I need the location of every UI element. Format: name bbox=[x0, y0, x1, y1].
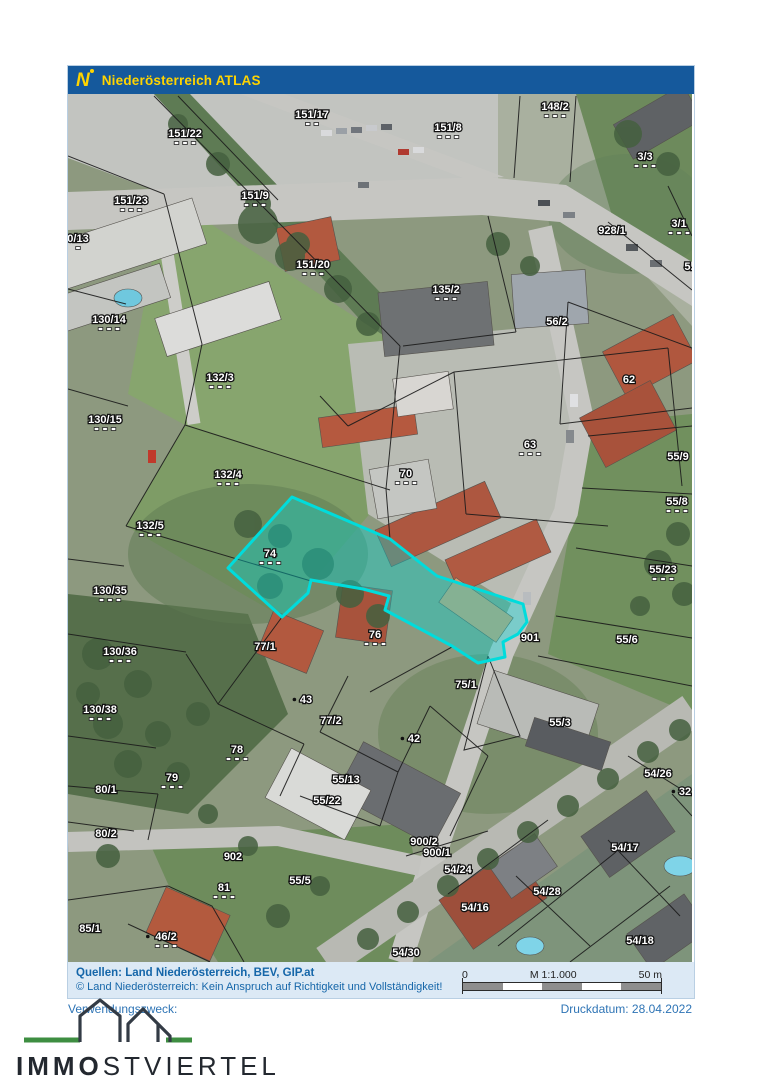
parcel-label: 3/3 bbox=[634, 151, 656, 168]
parcel-label: 56/2 bbox=[546, 316, 567, 328]
parcel-label: 132/5 bbox=[136, 520, 164, 537]
parcel-label: 928/1 bbox=[598, 225, 626, 237]
svg-text:43: 43 bbox=[300, 694, 312, 706]
parcel-label: 55/3 bbox=[549, 717, 570, 729]
svg-text:55/8: 55/8 bbox=[666, 496, 687, 508]
parcel-label: 80/1 bbox=[95, 784, 116, 796]
svg-text:55/3: 55/3 bbox=[549, 717, 570, 729]
parcel-label: 55/6 bbox=[616, 634, 637, 646]
svg-text:151/9: 151/9 bbox=[241, 190, 269, 202]
parcel-label: 135/2 bbox=[432, 284, 460, 301]
sources-strip: Quellen: Land Niederösterreich, BEV, GIP… bbox=[68, 962, 694, 998]
parcel-label: 85/1 bbox=[79, 923, 100, 935]
svg-text:130/38: 130/38 bbox=[83, 704, 117, 716]
brand-logo: IMMOSTVIERTEL bbox=[16, 996, 246, 1080]
scale-max: 50 m bbox=[639, 969, 662, 981]
svg-text:81: 81 bbox=[218, 882, 230, 894]
svg-text:151/8: 151/8 bbox=[434, 122, 462, 134]
svg-text:55/5: 55/5 bbox=[289, 875, 310, 887]
svg-text:85/1: 85/1 bbox=[79, 923, 100, 935]
svg-text:900/1: 900/1 bbox=[423, 847, 451, 859]
svg-text:77/2: 77/2 bbox=[320, 715, 341, 727]
parcel-label: 77/2 bbox=[320, 715, 341, 727]
parcel-label: 62 bbox=[623, 374, 635, 386]
parcel-label: 75/1 bbox=[455, 679, 476, 691]
svg-text:78: 78 bbox=[231, 744, 243, 756]
svg-text:54/16: 54/16 bbox=[461, 902, 489, 914]
svg-text:130/35: 130/35 bbox=[93, 585, 127, 597]
svg-text:63: 63 bbox=[524, 439, 536, 451]
brand-houses-icon bbox=[16, 996, 226, 1046]
svg-text:130/15: 130/15 bbox=[88, 414, 122, 426]
atlas-print-page: N Niederösterreich ATLAS bbox=[0, 0, 764, 1080]
svg-text:902: 902 bbox=[224, 851, 242, 863]
parcel-label: 54/30 bbox=[392, 947, 420, 959]
parcel-label: 54/26 bbox=[644, 768, 672, 780]
parcel-label: 5. bbox=[684, 261, 692, 273]
svg-text:56/2: 56/2 bbox=[546, 316, 567, 328]
sources-text: Quellen: Land Niederösterreich, BEV, GIP… bbox=[76, 966, 442, 980]
niederoesterreich-logo-icon: N bbox=[76, 71, 90, 90]
map-frame: N Niederösterreich ATLAS bbox=[67, 65, 695, 999]
svg-text:901: 901 bbox=[521, 632, 539, 644]
parcel-label: 3/1 bbox=[668, 218, 690, 235]
parcel-label: 55/13 bbox=[332, 774, 360, 786]
svg-text:76: 76 bbox=[369, 629, 381, 641]
parcel-label: 54/18 bbox=[626, 935, 654, 947]
svg-text:132/3: 132/3 bbox=[206, 372, 234, 384]
svg-text:132/4: 132/4 bbox=[214, 469, 242, 481]
parcel-label: 55/23 bbox=[649, 564, 677, 581]
svg-text:55/13: 55/13 bbox=[332, 774, 360, 786]
parcel-label: 54/24 bbox=[444, 864, 472, 876]
svg-text:46/2: 46/2 bbox=[155, 931, 176, 943]
svg-text:148/2: 148/2 bbox=[541, 101, 569, 113]
parcel-label: 55/5 bbox=[289, 875, 310, 887]
atlas-header: N Niederösterreich ATLAS bbox=[68, 66, 694, 94]
svg-text:80/1: 80/1 bbox=[95, 784, 116, 796]
parcel-label: 148/2 bbox=[541, 101, 569, 118]
parcel-label: 77/1 bbox=[254, 641, 275, 653]
parcel-label: 151/9 bbox=[241, 190, 269, 207]
svg-text:74: 74 bbox=[264, 548, 277, 560]
scale-ratio: M 1:1.000 bbox=[530, 969, 577, 981]
parcel-label: 55/9 bbox=[667, 451, 688, 463]
svg-text:151/17: 151/17 bbox=[295, 109, 329, 121]
svg-text:151/22: 151/22 bbox=[168, 128, 202, 140]
svg-text:54/28: 54/28 bbox=[533, 886, 561, 898]
parcel-label: 54/28 bbox=[533, 886, 561, 898]
svg-text:80/2: 80/2 bbox=[95, 828, 116, 840]
svg-text:130/36: 130/36 bbox=[103, 646, 137, 658]
svg-text:42: 42 bbox=[408, 733, 420, 745]
svg-text:151/23: 151/23 bbox=[114, 195, 148, 207]
svg-text:151/20: 151/20 bbox=[296, 259, 330, 271]
scale-bar-segments bbox=[462, 982, 662, 991]
atlas-title: Niederösterreich ATLAS bbox=[102, 73, 261, 88]
svg-text:75/1: 75/1 bbox=[455, 679, 476, 691]
svg-text:55/6: 55/6 bbox=[616, 634, 637, 646]
svg-text:32: 32 bbox=[679, 786, 691, 798]
aerial-map[interactable]: 151/22151/17148/2151/83/3151/23151/9928/… bbox=[68, 94, 692, 962]
parcel-label: 55/8 bbox=[666, 496, 688, 513]
parcel-label: 151/8 bbox=[434, 122, 462, 139]
svg-text:54/17: 54/17 bbox=[611, 842, 639, 854]
parcel-label: 900/1 bbox=[423, 847, 451, 859]
svg-text:54/18: 54/18 bbox=[626, 935, 654, 947]
svg-text:54/30: 54/30 bbox=[392, 947, 420, 959]
svg-text:54/24: 54/24 bbox=[444, 864, 472, 876]
print-date: Druckdatum: 28.04.2022 bbox=[561, 1002, 692, 1016]
svg-text:3/3: 3/3 bbox=[637, 151, 652, 163]
parcel-label: 54/17 bbox=[611, 842, 639, 854]
parcel-label: 54/16 bbox=[461, 902, 489, 914]
svg-text:5.: 5. bbox=[684, 261, 692, 273]
svg-text:62: 62 bbox=[623, 374, 635, 386]
parcel-label: 902 bbox=[224, 851, 242, 863]
parcel-label: 132/4 bbox=[214, 469, 242, 486]
svg-text:70: 70 bbox=[400, 468, 412, 480]
svg-text:77/1: 77/1 bbox=[254, 641, 275, 653]
svg-text:132/5: 132/5 bbox=[136, 520, 164, 532]
disclaimer-text: © Land Niederösterreich: Kein Anspruch a… bbox=[76, 980, 442, 994]
svg-text:135/2: 135/2 bbox=[432, 284, 460, 296]
svg-text:55/9: 55/9 bbox=[667, 451, 688, 463]
scale-bar: 0 M 1:1.000 50 m bbox=[462, 969, 662, 991]
svg-text:3/1: 3/1 bbox=[671, 218, 686, 230]
svg-text:0/13: 0/13 bbox=[68, 233, 89, 245]
parcel-label: 132/3 bbox=[206, 372, 234, 389]
svg-text:79: 79 bbox=[166, 772, 178, 784]
svg-text:928/1: 928/1 bbox=[598, 225, 626, 237]
parcel-label: 55/22 bbox=[313, 795, 341, 807]
parcel-label: 901 bbox=[521, 632, 539, 644]
svg-text:54/26: 54/26 bbox=[644, 768, 672, 780]
brand-wordmark: IMMOSTVIERTEL bbox=[16, 1051, 246, 1080]
svg-text:55/23: 55/23 bbox=[649, 564, 677, 576]
svg-text:130/14: 130/14 bbox=[92, 314, 127, 326]
parcel-label: 80/2 bbox=[95, 828, 116, 840]
svg-text:55/22: 55/22 bbox=[313, 795, 341, 807]
